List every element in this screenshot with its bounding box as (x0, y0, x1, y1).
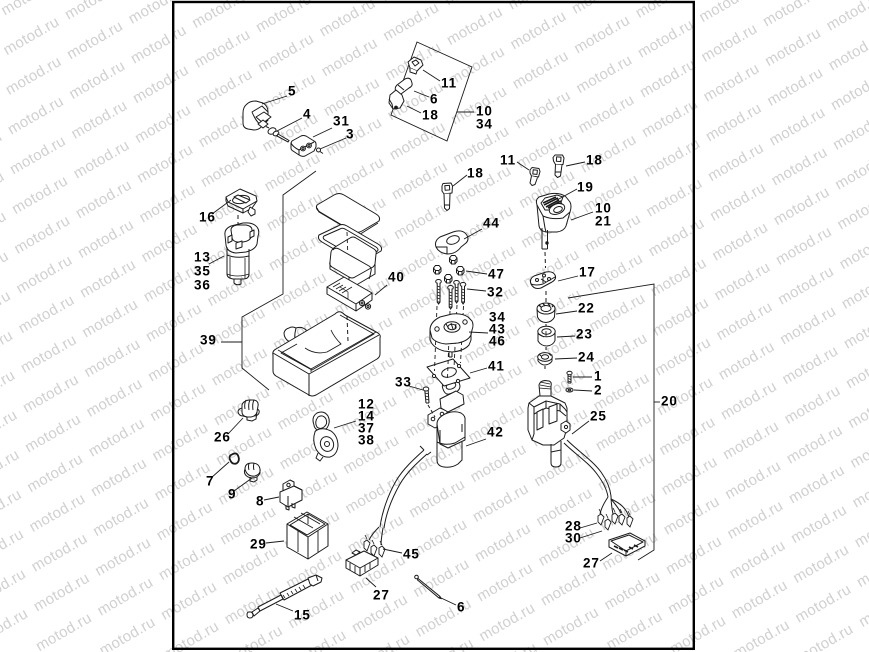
svg-text:45: 45 (403, 547, 420, 562)
svg-text:19: 19 (577, 180, 594, 195)
svg-text:33: 33 (395, 375, 412, 390)
svg-text:13: 13 (194, 250, 211, 265)
svg-text:40: 40 (388, 270, 405, 285)
svg-text:21: 21 (595, 214, 612, 229)
svg-text:47: 47 (488, 267, 505, 282)
svg-text:39: 39 (200, 333, 217, 348)
svg-text:18: 18 (467, 166, 484, 181)
svg-text:25: 25 (590, 409, 607, 424)
svg-text:44: 44 (483, 216, 500, 231)
svg-text:9: 9 (228, 487, 236, 502)
svg-text:6: 6 (430, 92, 438, 107)
svg-text:24: 24 (578, 350, 595, 365)
svg-text:3: 3 (346, 127, 354, 142)
svg-text:35: 35 (194, 264, 211, 279)
svg-text:20: 20 (661, 394, 678, 409)
svg-text:4: 4 (303, 107, 311, 122)
svg-text:1: 1 (594, 369, 602, 384)
svg-text:29: 29 (250, 537, 267, 552)
svg-text:11: 11 (441, 76, 457, 91)
svg-text:27: 27 (583, 556, 600, 571)
svg-text:23: 23 (576, 327, 593, 342)
svg-text:42: 42 (487, 425, 504, 440)
svg-text:38: 38 (358, 433, 375, 448)
svg-text:16: 16 (199, 210, 216, 225)
svg-text:18: 18 (586, 153, 603, 168)
svg-text:8: 8 (256, 494, 264, 509)
svg-text:17: 17 (579, 265, 596, 280)
svg-text:34: 34 (476, 117, 493, 132)
svg-text:5: 5 (288, 84, 296, 99)
svg-text:6: 6 (457, 600, 465, 615)
svg-text:30: 30 (565, 531, 582, 546)
svg-text:41: 41 (488, 359, 505, 374)
svg-text:2: 2 (594, 383, 602, 398)
svg-text:46: 46 (489, 334, 506, 349)
svg-text:36: 36 (194, 278, 211, 293)
svg-text:7: 7 (206, 474, 214, 489)
svg-text:26: 26 (214, 430, 231, 445)
svg-text:15: 15 (294, 608, 311, 623)
svg-text:32: 32 (487, 285, 504, 300)
svg-text:22: 22 (578, 301, 595, 316)
svg-text:18: 18 (422, 108, 439, 123)
svg-text:27: 27 (373, 588, 390, 603)
svg-text:11: 11 (500, 153, 516, 168)
